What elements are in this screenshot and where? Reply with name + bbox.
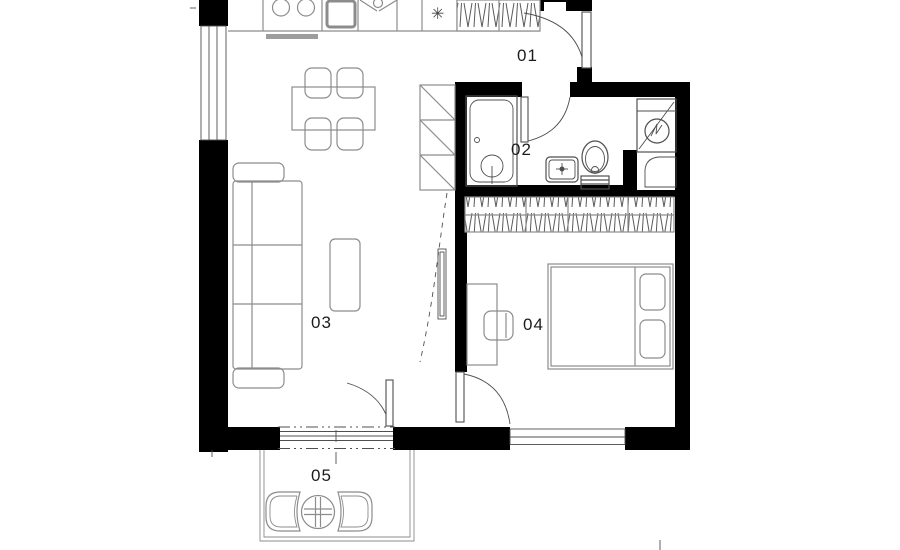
bedroom-door-swing: [464, 374, 510, 424]
balcony-door-leaf: [386, 380, 393, 426]
wall-left-top: [199, 0, 228, 26]
burner-icon: [298, 0, 315, 16]
balcony-door-swing: [347, 383, 389, 423]
dining-chair: [305, 118, 331, 150]
dining-chair: [305, 68, 331, 98]
wall-bottom-middle: [393, 427, 510, 450]
bedroom-door: [456, 372, 510, 424]
desk: [467, 284, 497, 365]
toilet: [581, 141, 609, 189]
room-label-bathroom: 02: [511, 140, 532, 159]
sofa: [233, 163, 302, 388]
balcony-door: [347, 380, 393, 426]
bathroom-fixtures: [466, 96, 676, 189]
burner-icon: [273, 0, 290, 16]
wall-under-niche: [637, 190, 690, 197]
washbasin: [546, 157, 578, 182]
fridge-snowflake-icon: ✳: [431, 4, 444, 23]
coffee-table: [330, 239, 360, 311]
dining-chair: [337, 68, 363, 98]
bed: [548, 264, 673, 369]
bathroom-door-swing: [528, 97, 570, 141]
entry-closet: [457, 0, 540, 31]
bathroom-door-leaf: [521, 97, 528, 142]
dining-chair: [337, 118, 363, 150]
bathroom-door: [521, 97, 570, 142]
kitchen-sink: [327, 1, 355, 27]
living-furniture: [233, 68, 375, 388]
balcony-chair: [266, 492, 300, 531]
wardrobe: [465, 197, 674, 232]
dining-set: [292, 68, 375, 150]
wall-bathroom-bottom: [455, 185, 637, 197]
floor-plan: ✳: [0, 0, 900, 550]
range-hood-icon: [360, 0, 397, 11]
wall-top-right-horizontal: [570, 82, 690, 97]
entry-door-leaf: [582, 12, 591, 68]
wall-left-main: [199, 140, 228, 452]
bedroom-furniture: [465, 197, 674, 369]
desk-chair: [484, 311, 513, 340]
room-label-bedroom: 04: [523, 315, 544, 334]
window-left: [201, 26, 226, 140]
washing-machine: [637, 99, 676, 152]
wall-bottom-left: [199, 427, 280, 450]
window-bedroom: [510, 429, 625, 445]
wall-entry-corner: [577, 67, 592, 82]
oven-handle: [266, 34, 318, 39]
sliding-door-path: [420, 193, 447, 362]
room-label-balcony: 05: [311, 466, 332, 485]
fridge: ✳: [431, 4, 444, 23]
entry-threshold: [544, 2, 566, 11]
bedroom-door-leaf: [456, 372, 464, 422]
stove: [266, 0, 318, 39]
balcony-railing-inner: [264, 450, 410, 537]
sliding-door-panel: [438, 249, 446, 319]
water-heater: [645, 157, 676, 187]
balcony-chair: [338, 492, 372, 531]
kitchen-counter: ✳: [228, 0, 540, 39]
wall-right: [675, 82, 690, 450]
balcony-table: [302, 496, 335, 529]
balcony-structure: [260, 450, 414, 541]
windows: [201, 26, 625, 449]
pillow: [640, 274, 665, 310]
room-label-living: 03: [311, 313, 332, 332]
room-label-entry: 01: [517, 46, 538, 65]
sliding-door: [420, 193, 447, 362]
hall-cabinet: [420, 85, 455, 190]
pillow: [640, 320, 665, 358]
balcony-glazing: [278, 427, 395, 449]
wall-bathroom-stub: [623, 150, 637, 190]
bathtub: [466, 96, 517, 186]
